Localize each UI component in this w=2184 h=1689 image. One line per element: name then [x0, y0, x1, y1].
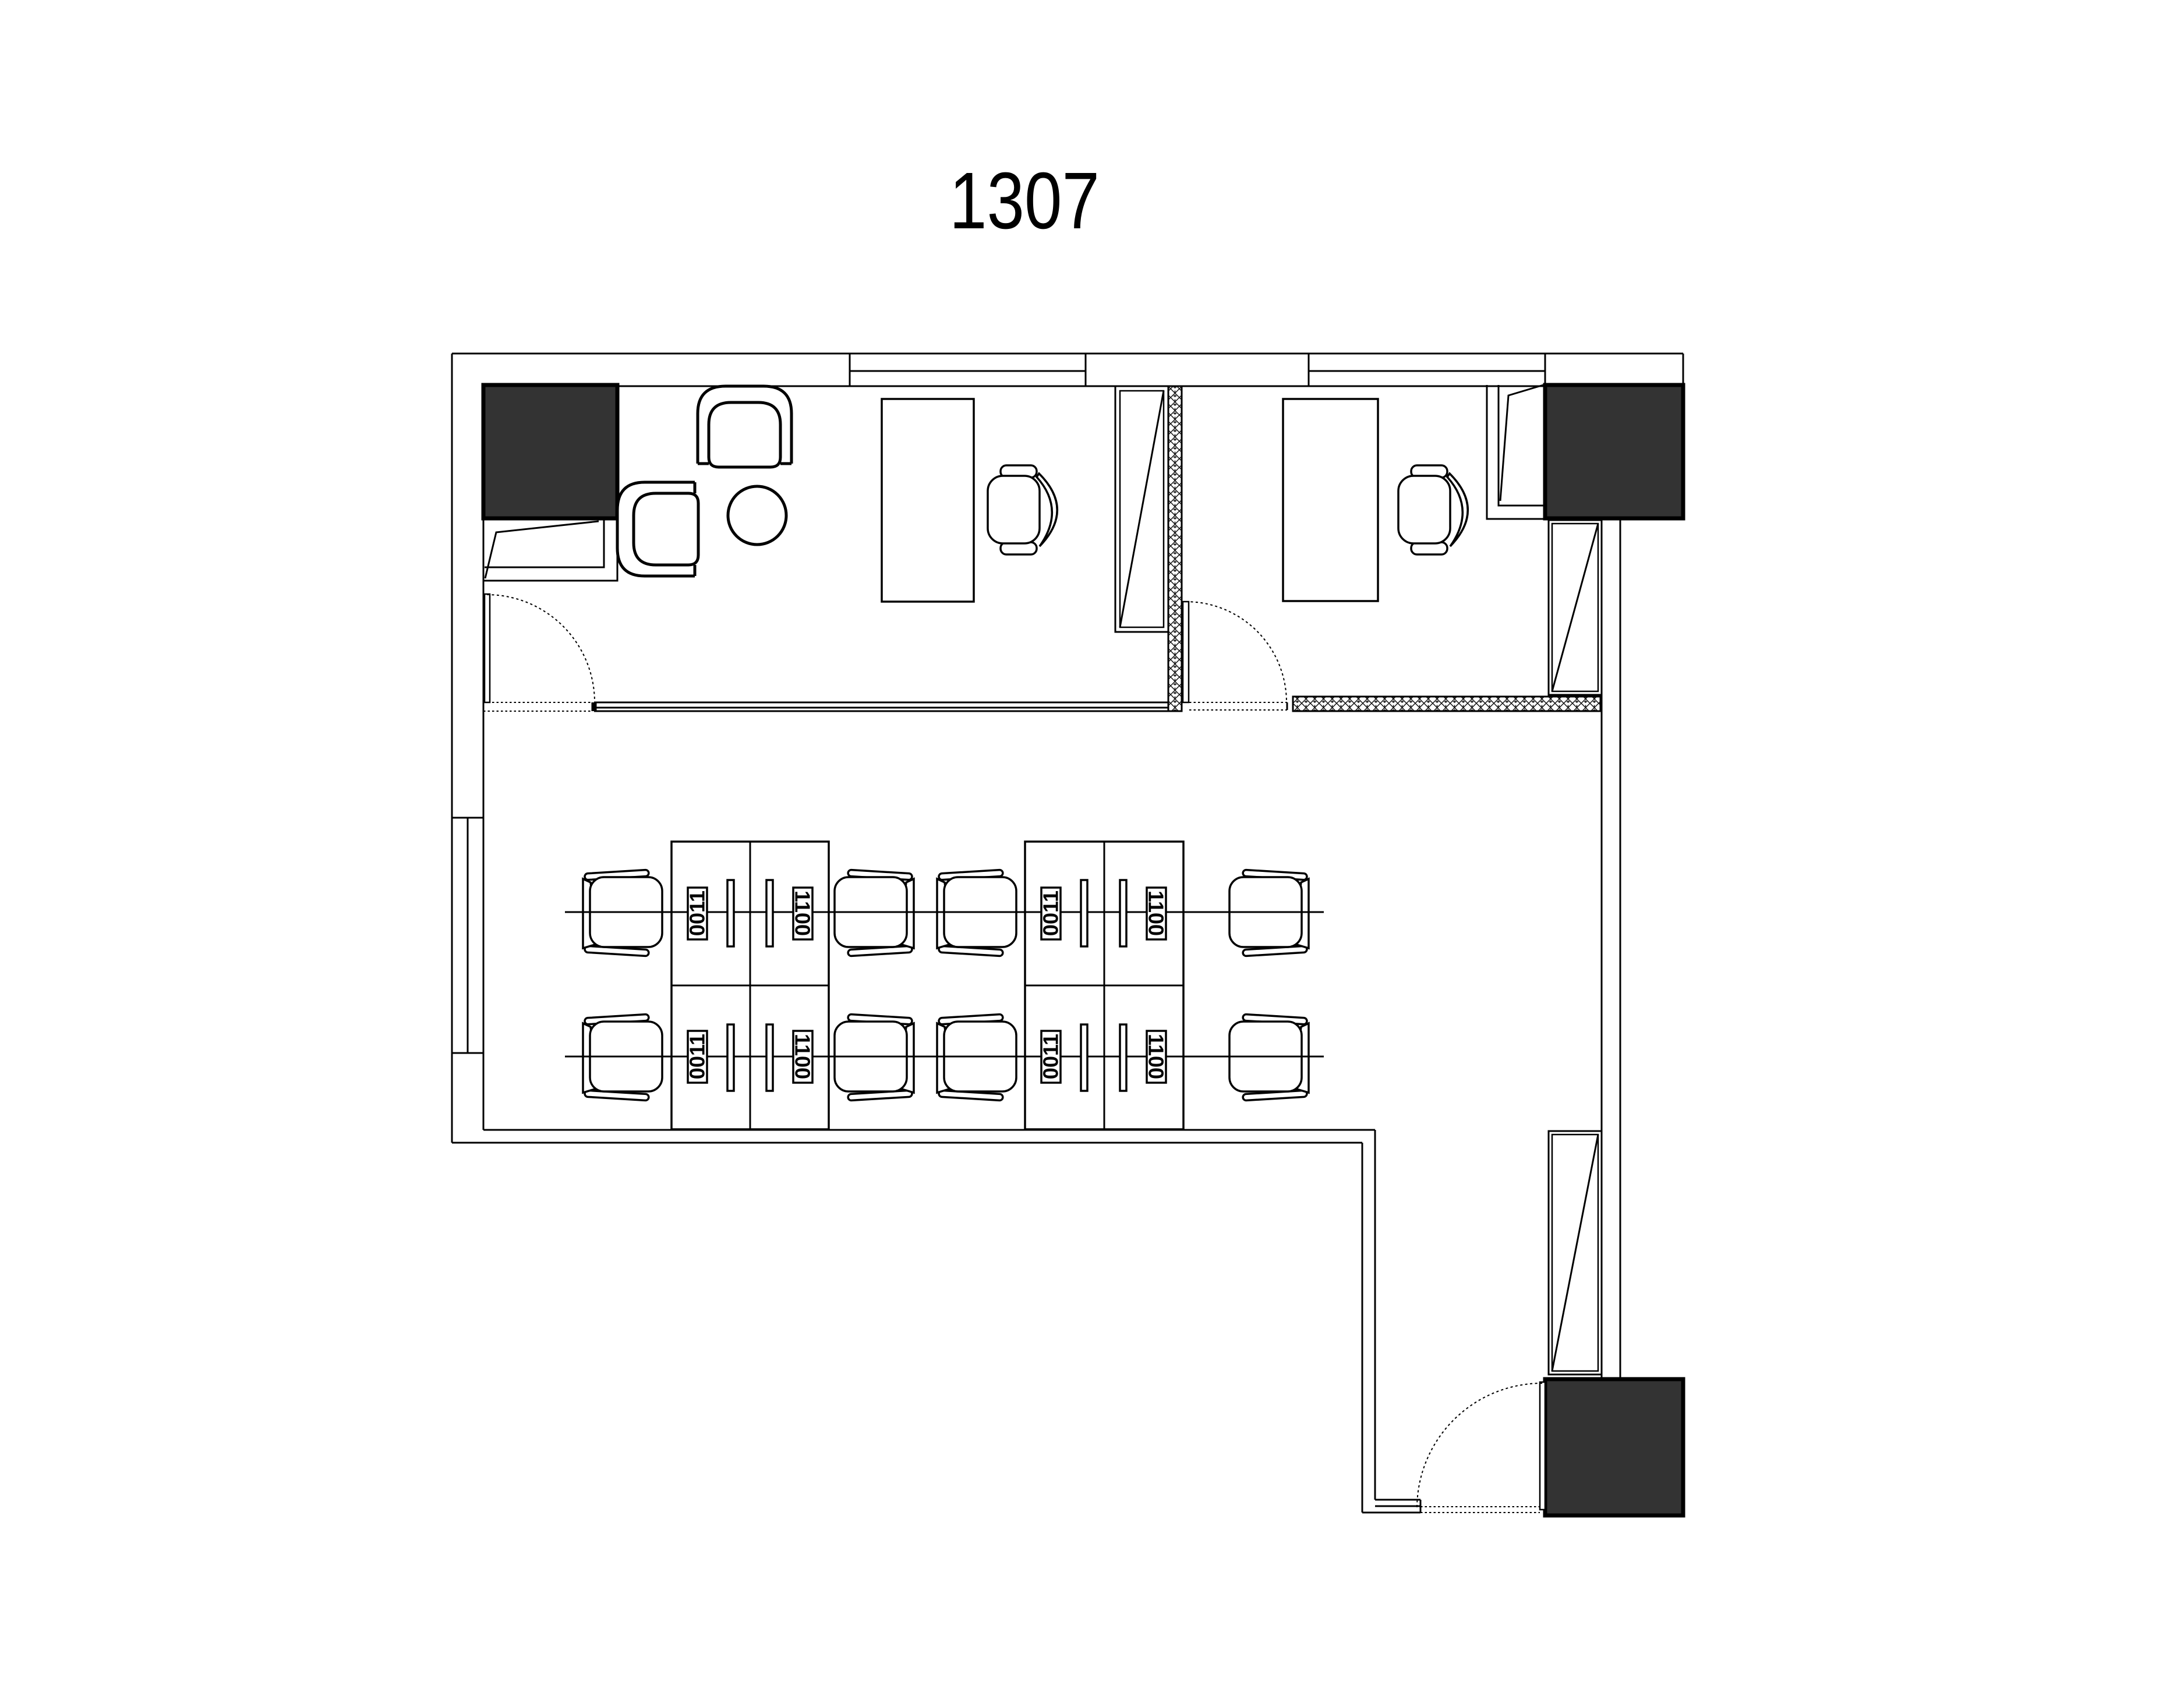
svg-text:1100: 1100 — [791, 891, 815, 936]
svg-text:1100: 1100 — [1144, 1034, 1168, 1079]
svg-text:1307: 1307 — [949, 156, 1100, 246]
svg-text:0011: 0011 — [1039, 1034, 1063, 1079]
svg-text:1100: 1100 — [791, 1034, 815, 1079]
svg-text:1100: 1100 — [1144, 891, 1168, 936]
svg-text:0011: 0011 — [685, 891, 709, 936]
svg-text:0011: 0011 — [685, 1034, 709, 1079]
svg-text:0011: 0011 — [1039, 891, 1063, 936]
